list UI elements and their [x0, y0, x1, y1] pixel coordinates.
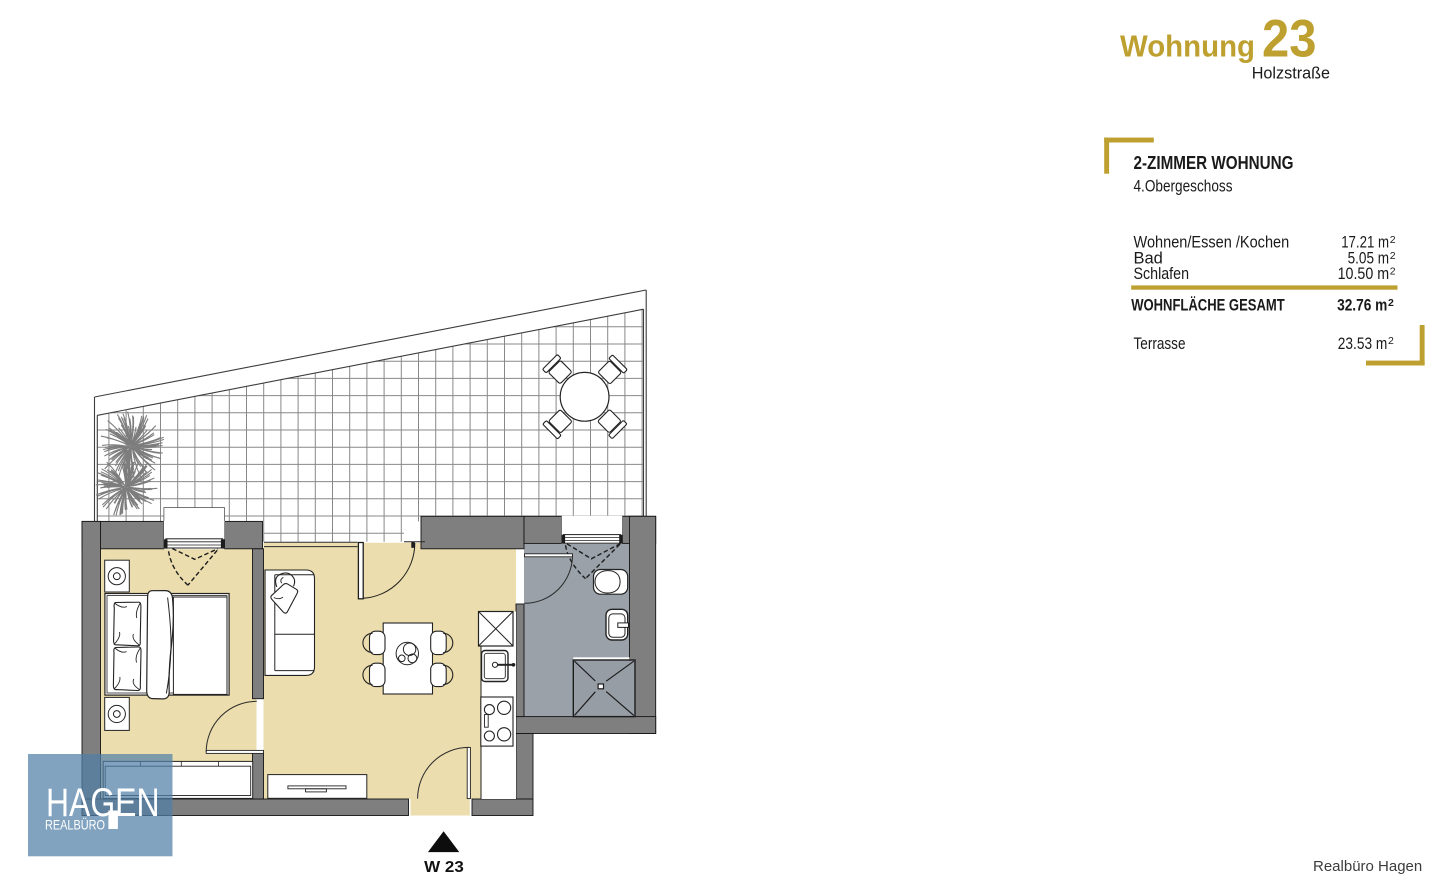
svg-text:2: 2	[1388, 335, 1394, 347]
svg-text:2-ZIMMER WOHNUNG: 2-ZIMMER WOHNUNG	[1134, 152, 1294, 173]
svg-text:REALBÜRO: REALBÜRO	[45, 816, 105, 833]
svg-text:Terrasse: Terrasse	[1134, 335, 1186, 353]
svg-text:Schlafen: Schlafen	[1134, 265, 1190, 283]
svg-text:W 23: W 23	[424, 859, 464, 876]
svg-text:2: 2	[1390, 250, 1396, 262]
svg-text:2: 2	[1388, 297, 1394, 309]
svg-text:Holzstraße: Holzstraße	[1252, 65, 1330, 83]
svg-text:32.76 m: 32.76 m	[1337, 297, 1387, 315]
svg-text:2: 2	[1390, 266, 1396, 278]
svg-text:WOHNFLÄCHE GESAMT: WOHNFLÄCHE GESAMT	[1131, 297, 1285, 315]
svg-text:2: 2	[1390, 234, 1396, 246]
svg-text:4.Obergeschoss: 4.Obergeschoss	[1134, 177, 1233, 195]
svg-text:Realbüro Hagen: Realbüro Hagen	[1313, 858, 1422, 875]
svg-text:23.53 m: 23.53 m	[1338, 335, 1388, 353]
svg-text:Wohnung: Wohnung	[1120, 29, 1255, 64]
svg-text:23: 23	[1262, 10, 1317, 69]
svg-text:10.50 m: 10.50 m	[1338, 265, 1390, 283]
